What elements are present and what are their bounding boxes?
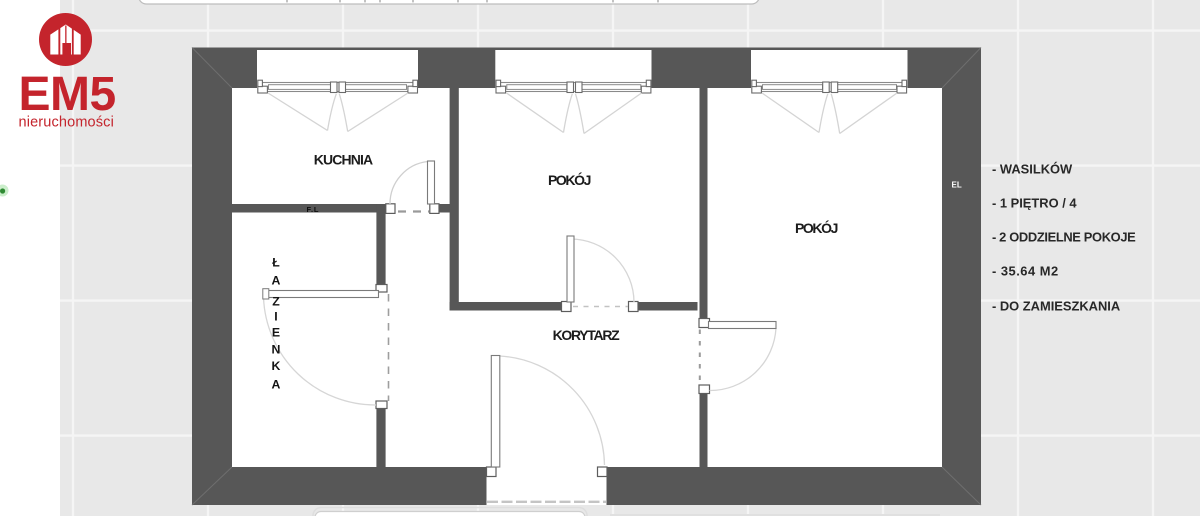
svg-text:- 2 ODDZIELNE POKOJE: - 2 ODDZIELNE POKOJE [992,229,1136,244]
svg-text:- 35.64 M2: - 35.64 M2 [992,264,1059,279]
svg-text:- WASILKÓW: - WASILKÓW [992,162,1073,177]
svg-text:nieruchomości: nieruchomości [19,115,114,131]
svg-text:I: I [274,309,277,323]
svg-text:- 1 PIĘTRO / 4: - 1 PIĘTRO / 4 [992,196,1077,211]
svg-text:A: A [272,273,281,287]
svg-text:KUCHNIA: KUCHNIA [314,152,373,168]
svg-text:A: A [272,377,281,391]
svg-text:Z: Z [272,294,280,308]
svg-text:EM5: EM5 [19,68,116,121]
svg-text:Ł: Ł [272,256,280,270]
svg-text:KORYTARZ: KORYTARZ [553,327,621,343]
svg-text:POKÓJ: POKÓJ [795,219,838,236]
svg-text:K: K [272,359,281,373]
svg-text:- DO ZAMIESZKANIA: - DO ZAMIESZKANIA [992,298,1120,313]
svg-text:POKÓJ: POKÓJ [548,171,591,188]
svg-text:F.L: F.L [307,205,320,214]
svg-text:EL: EL [952,181,962,190]
svg-text:E: E [272,325,280,339]
svg-text:N: N [272,342,281,356]
